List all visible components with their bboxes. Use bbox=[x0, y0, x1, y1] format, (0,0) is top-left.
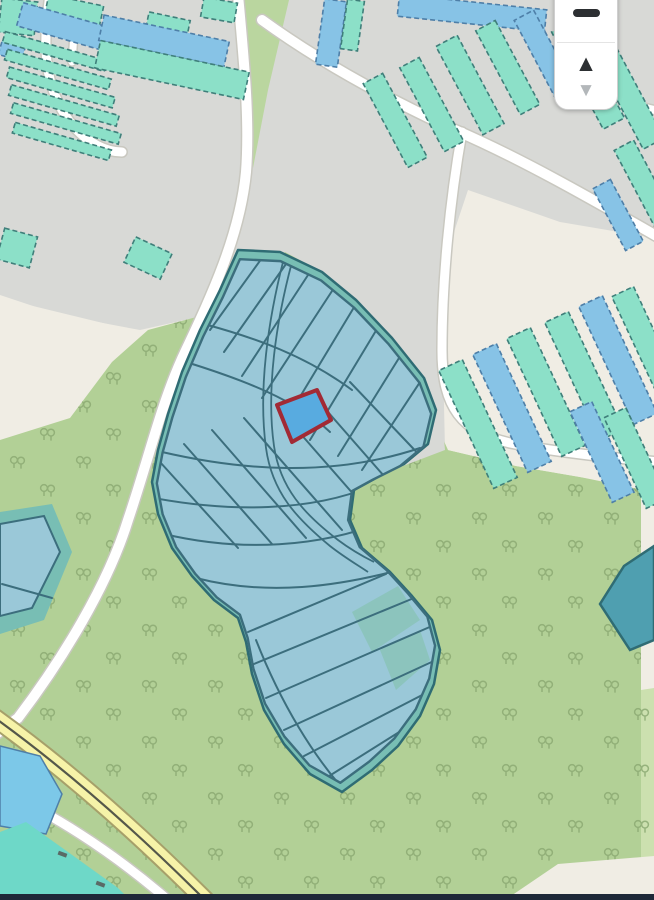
zoom-out-button[interactable] bbox=[555, 0, 617, 42]
scroll-spinner: ▲ ▼ bbox=[555, 43, 617, 109]
map-application-window: ▲ ▼ bbox=[0, 0, 654, 900]
scroll-down-button[interactable]: ▼ bbox=[555, 78, 617, 104]
triangle-up-icon: ▲ bbox=[575, 53, 598, 73]
map-control-widget: ▲ ▼ bbox=[554, 0, 618, 110]
triangle-down-icon: ▼ bbox=[577, 83, 596, 99]
minus-icon bbox=[573, 9, 600, 17]
scroll-up-button[interactable]: ▲ bbox=[555, 48, 617, 78]
map-canvas[interactable] bbox=[0, 0, 654, 900]
bottom-edge-bar bbox=[0, 894, 654, 900]
